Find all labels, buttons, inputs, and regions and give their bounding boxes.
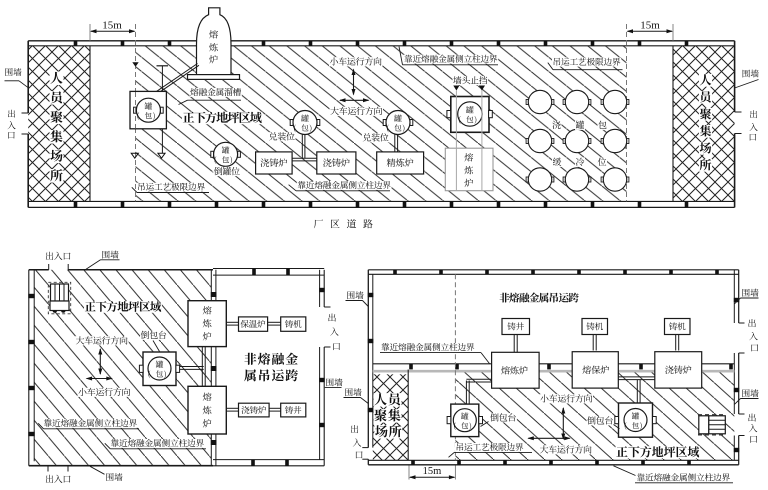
svg-text:15m: 15m [423,466,442,477]
svg-text:15m: 15m [640,19,660,31]
svg-text:15m: 15m [102,19,122,31]
